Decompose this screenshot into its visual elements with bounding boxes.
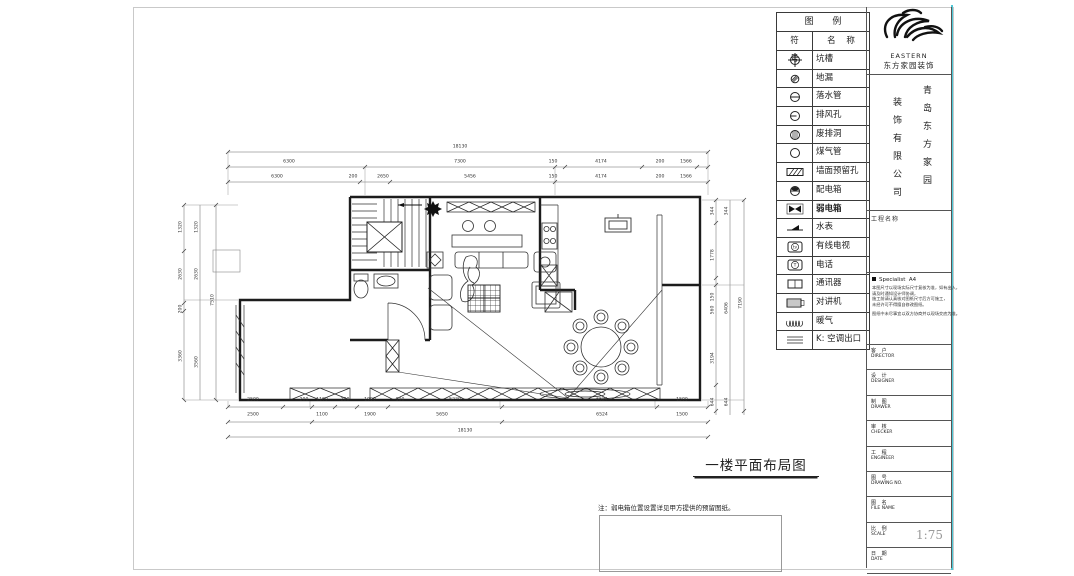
row-label-en: DESIGNER	[867, 379, 951, 384]
legend-item-name: 废排洞	[813, 126, 869, 144]
dimension-label: 7510	[211, 294, 216, 306]
row-label-cn: 审 核	[867, 421, 951, 430]
plan-title: 一楼平面布局图	[693, 454, 819, 477]
window-wall-right	[657, 215, 662, 385]
tv-box-icon: tv	[777, 238, 813, 256]
legend-item-name: 排风孔	[813, 107, 869, 125]
notes-line: 施工前请认真核对图纸尺寸后方可施工，	[867, 296, 951, 302]
title-block-row-drawing-no-: 图 号DRAWING NO.	[867, 472, 951, 497]
plain-circle-icon	[777, 144, 813, 162]
title-block-row-director: 客 户DIRECTOR	[867, 345, 951, 370]
outside-step	[213, 250, 240, 272]
dimension-label: 5230	[449, 398, 461, 403]
legend-row: 废排洞	[777, 126, 869, 145]
legend-row: 落水管	[777, 88, 869, 107]
plan-note: 注：弱电箱位置设置详见甲方提供的预留图纸。	[598, 502, 735, 512]
legend-row: K: 空调出口	[777, 331, 869, 349]
dimension-label: 344	[711, 207, 716, 216]
dimension-label: 200	[300, 398, 309, 403]
notes-line: 本图尺寸以现场实际尺寸复核为准，如有出入，	[867, 285, 951, 291]
dimension-label: 200	[656, 160, 665, 165]
dimension-label: 6406	[725, 302, 730, 314]
title-block-row-checker: 审 核CHECKER	[867, 421, 951, 446]
dimension-label: 200	[349, 175, 358, 180]
legend-row: 配电箱	[777, 182, 869, 201]
legend-item-name: 通讯器	[813, 275, 869, 293]
bowtie-icon	[777, 201, 813, 219]
svg-text:T: T	[792, 263, 796, 269]
row-label-en: DRAWER	[867, 405, 951, 410]
dimension-label: 3194	[711, 352, 716, 364]
title-block-row-scale: 比 例SCALE1:75	[867, 523, 951, 548]
line-circle-icon	[777, 88, 813, 106]
row-label-en: DRAWING NO.	[867, 481, 951, 486]
dimension-label: 1100	[316, 398, 328, 403]
company-name-left: 装饰有限公司	[890, 97, 903, 205]
legend-row: T电话	[777, 257, 869, 276]
toilet	[354, 280, 368, 298]
vent-circle-icon	[777, 107, 813, 125]
legend-table: 图 例 符 号 名 称 坑槽地漏落水管排风孔废排洞煤气管墙面预留孔配电箱弱电箱水…	[776, 12, 870, 350]
hatched-rect-icon	[777, 163, 813, 181]
title-block-row-designer: 设 计DESIGNER	[867, 370, 951, 395]
water-meter-icon	[777, 219, 813, 237]
diagonal-guides	[398, 288, 662, 398]
dimension-label: 18130	[458, 429, 473, 434]
notes-extra-line: 图纸中未尽事宜以双方协商并以现场交底为准。	[867, 307, 951, 317]
crosshair-circle-icon	[777, 51, 813, 69]
dimension-label: 2650	[377, 175, 389, 180]
legend-row: 墙面预留孔	[777, 163, 869, 182]
row-label-cn: 工 程	[867, 447, 951, 456]
legend-item-name: 配电箱	[813, 182, 869, 200]
legend-item-name: 有线电视	[813, 238, 869, 256]
dimension-label: 2500	[247, 413, 259, 418]
dimension-label: 4174	[595, 175, 607, 180]
dimension-label: 1500	[676, 413, 688, 418]
row-label-cn: 日 期	[867, 548, 951, 557]
dimension-label: 6300	[283, 160, 295, 165]
wall-ac-unit	[605, 214, 631, 232]
row-label-en: FILE NAME	[867, 506, 951, 511]
dimension-label: 560	[711, 306, 716, 315]
dimension-label: 1100	[316, 413, 328, 418]
legend-item-name: 煤气管	[813, 144, 869, 162]
dimension-label: 5650	[436, 413, 448, 418]
bathroom	[354, 274, 425, 340]
row-label-en: DATE	[867, 557, 951, 562]
title-block-row-engineer: 工 程ENGINEER	[867, 447, 951, 472]
notes-header: Specialist A4	[867, 273, 951, 285]
column-x	[386, 340, 399, 372]
brand-name-cn: 东方家园装饰	[867, 60, 951, 71]
stair-arrow	[398, 203, 422, 207]
dimension-label: 200	[179, 305, 184, 314]
dimension-label: 1500	[676, 398, 688, 403]
dimension-label: 150	[549, 175, 558, 180]
dimension-label: 18130	[453, 145, 468, 150]
dimension-label: 2630	[179, 268, 184, 280]
legend-item-name: K: 空调出口	[813, 331, 869, 349]
dimension-label: 1900	[364, 398, 376, 403]
dimension-label: 3560	[195, 356, 200, 368]
legend-row: tv有线电视	[777, 238, 869, 257]
legend-row: 排风孔	[777, 107, 869, 126]
legend-item-name: 电话	[813, 257, 869, 275]
company-name-box: 青岛东方家园 装饰有限公司	[867, 75, 951, 211]
grill-circle-icon	[777, 126, 813, 144]
legend-item-name: 水表	[813, 219, 869, 237]
dimension-label: 100	[396, 398, 405, 403]
row-label-en: CHECKER	[867, 430, 951, 435]
title-block-row-date: 日 期DATE	[867, 548, 951, 573]
dimension-label: 6524	[596, 398, 608, 403]
dimension-label: 1320	[179, 221, 184, 233]
legend-row: 暖气	[777, 313, 869, 332]
dimension-label: 4174	[595, 160, 607, 165]
notes-box: Specialist A4 本图尺寸以现场实际尺寸复核为准，如有出入，请及时通知…	[867, 273, 951, 345]
comm-box-icon	[777, 275, 813, 293]
dimension-label: 7190	[739, 297, 744, 309]
row-label-cn: 图 号	[867, 472, 951, 481]
dimension-label: 1778	[711, 249, 716, 261]
skylight-square	[367, 222, 402, 252]
dimension-label: 7300	[454, 160, 466, 165]
brand-name-en: EASTERN	[867, 52, 951, 60]
legend-col-symbol: 符 号	[777, 32, 813, 50]
row-value: 1:75	[916, 528, 943, 542]
phone-box-icon: T	[777, 257, 813, 275]
square-bullet-icon	[872, 277, 876, 281]
project-name-box: 工程名称	[867, 211, 951, 273]
legend-title: 图 例	[777, 13, 869, 32]
project-name-label: 工程名称	[867, 211, 951, 223]
dimension-label: 1900	[364, 413, 376, 418]
legend-row: 弱电箱	[777, 201, 869, 220]
dimension-label: 200	[656, 175, 665, 180]
radiator-coil-icon	[777, 313, 813, 331]
tv-cabinet	[452, 235, 522, 247]
footer-box	[599, 515, 782, 572]
legend-row: 通讯器	[777, 275, 869, 294]
legend-row: 地漏	[777, 70, 869, 89]
title-block-column: EASTERN 东方家园装饰 青岛东方家园 装饰有限公司 工程名称 Specia…	[866, 7, 952, 568]
legend-row: 坑槽	[777, 51, 869, 70]
legend-item-name: 坑槽	[813, 51, 869, 69]
dimension-label: 2630	[195, 268, 200, 280]
bar-stools	[463, 221, 496, 232]
legend-row: 水表	[777, 219, 869, 238]
legend-col-name: 名 称	[813, 32, 869, 50]
legend-item-name: 弱电箱	[813, 201, 869, 219]
dimension-label: 644	[725, 398, 730, 407]
window-band-top	[447, 202, 535, 212]
legend-item-name: 地漏	[813, 70, 869, 88]
dimension-label: 1320	[195, 221, 200, 233]
svg-text:tv: tv	[793, 244, 798, 249]
row-label-en: ENGINEER	[867, 456, 951, 461]
title-block-row-drawer: 制 图DRAWER	[867, 396, 951, 421]
row-label-en: DIRECTOR	[867, 354, 951, 359]
eastern-bird-logo-icon	[873, 7, 945, 47]
bathroom-door	[388, 303, 425, 340]
dimension-label: 3360	[179, 350, 184, 362]
dining-table	[564, 310, 638, 384]
dimension-label: 1566	[680, 175, 692, 180]
title-block-row-file-name: 图 名FILE NAME	[867, 497, 951, 522]
dimension-label: 200	[341, 398, 350, 403]
legend-item-name: 落水管	[813, 88, 869, 106]
plant-icon	[424, 201, 442, 217]
legend-item-name: 暖气	[813, 313, 869, 331]
legend-row: 煤气管	[777, 144, 869, 163]
legend-item-name: 墙面预留孔	[813, 163, 869, 181]
row-label-cn: 制 图	[867, 396, 951, 405]
dimension-label: 5456	[464, 175, 476, 180]
dimension-label: 150	[711, 293, 716, 302]
row-label-cn: 客 户	[867, 345, 951, 354]
parallel-lines-icon	[777, 331, 813, 349]
half-filled-circle-icon	[777, 182, 813, 200]
coffee-table	[468, 285, 500, 312]
footer-box-label	[600, 516, 781, 519]
dimension-label: 2500	[247, 398, 259, 403]
dimension-label: 150	[549, 160, 558, 165]
company-logo-box: EASTERN 东方家园装饰	[867, 7, 951, 75]
hatched-circle-icon	[777, 70, 813, 88]
drawing-sheet: 图 例 符 号 名 称 坑槽地漏落水管排风孔废排洞煤气管墙面预留孔配电箱弱电箱水…	[0, 0, 1074, 576]
dimension-label: 344	[725, 207, 730, 216]
dimension-label: 6524	[596, 413, 608, 418]
dimension-label: 1566	[680, 160, 692, 165]
legend-row: 对讲机	[777, 294, 869, 313]
dimension-ticks	[182, 150, 746, 439]
dimension-label: 644	[711, 398, 716, 407]
legend-header: 符 号 名 称	[777, 32, 869, 51]
dimension-label: 6300	[271, 175, 283, 180]
legend-item-name: 对讲机	[813, 294, 869, 312]
company-name-right: 青岛东方家园	[920, 85, 933, 193]
intercom-box-icon	[777, 294, 813, 312]
